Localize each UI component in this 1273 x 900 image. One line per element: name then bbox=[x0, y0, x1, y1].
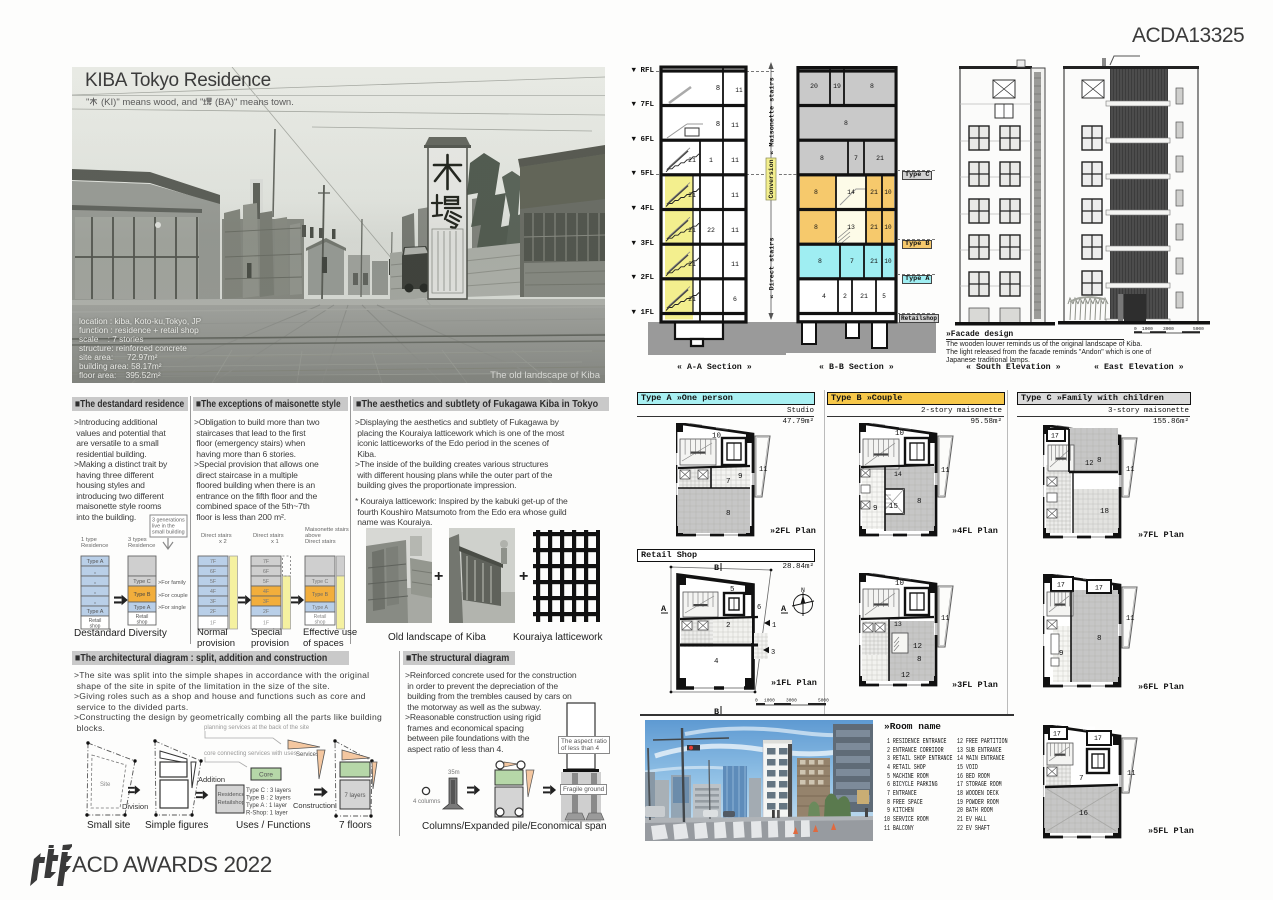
svg-text:Type A: Type A bbox=[87, 609, 104, 615]
svg-text:>For family: >For family bbox=[158, 580, 186, 586]
svg-text:20: 20 bbox=[810, 83, 818, 90]
svg-text:« Direct stairs: « Direct stairs bbox=[769, 237, 777, 298]
svg-text:Direct stairs: Direct stairs bbox=[253, 533, 284, 539]
svg-text:2: 2 bbox=[726, 622, 731, 630]
svg-text:7 layers: 7 layers bbox=[344, 793, 365, 799]
svg-text:11: 11 bbox=[1126, 466, 1134, 474]
svg-text:21: 21 bbox=[688, 261, 696, 268]
svg-text:16: 16 bbox=[1079, 810, 1089, 818]
svg-text:Type A: Type A bbox=[87, 559, 104, 565]
svg-text:18: 18 bbox=[1100, 508, 1109, 516]
svg-text:7: 7 bbox=[726, 478, 731, 486]
svg-text:„: „ bbox=[94, 569, 96, 575]
svg-text:4F: 4F bbox=[263, 589, 269, 595]
svg-text:21: 21 bbox=[870, 189, 878, 196]
svg-text:11: 11 bbox=[941, 615, 949, 623]
svg-text:14: 14 bbox=[847, 189, 855, 196]
svg-text:10: 10 bbox=[712, 433, 722, 441]
svg-text:5F: 5F bbox=[210, 579, 216, 585]
svg-text:21: 21 bbox=[870, 258, 878, 265]
svg-text:8: 8 bbox=[814, 224, 818, 231]
svg-text:Retailshop: Retailshop bbox=[218, 800, 245, 806]
svg-text:B: B bbox=[714, 563, 719, 573]
svg-text:11: 11 bbox=[731, 192, 739, 199]
svg-text:Residence: Residence bbox=[81, 543, 108, 549]
svg-text:1000: 1000 bbox=[764, 698, 775, 704]
svg-text:Type B: Type B bbox=[133, 592, 150, 598]
svg-text:Type B : 2 layers: Type B : 2 layers bbox=[246, 796, 291, 802]
svg-text:17: 17 bbox=[1094, 735, 1102, 742]
svg-text:6: 6 bbox=[757, 604, 761, 612]
svg-text:11: 11 bbox=[731, 227, 739, 234]
svg-text:small building: small building bbox=[152, 530, 185, 536]
svg-text:3F: 3F bbox=[263, 599, 269, 605]
svg-text:Type A: Type A bbox=[312, 605, 328, 611]
svg-text:11: 11 bbox=[1127, 770, 1135, 778]
svg-text:7: 7 bbox=[850, 258, 854, 265]
svg-text:11: 11 bbox=[759, 466, 767, 474]
svg-text:8: 8 bbox=[1097, 635, 1102, 643]
svg-text:6: 6 bbox=[733, 296, 737, 303]
svg-text:B: B bbox=[714, 707, 719, 717]
svg-text:7: 7 bbox=[1079, 775, 1084, 783]
svg-text:3: 3 bbox=[771, 649, 775, 657]
svg-text:Addition: Addition bbox=[198, 775, 225, 784]
svg-text:7: 7 bbox=[854, 155, 858, 162]
svg-text:3F: 3F bbox=[210, 599, 216, 605]
svg-text:10: 10 bbox=[884, 258, 892, 265]
svg-text:Type A : 1 layer: Type A : 1 layer bbox=[246, 803, 287, 809]
svg-text:„: „ bbox=[94, 589, 96, 595]
svg-text:12: 12 bbox=[901, 672, 910, 680]
svg-text:8: 8 bbox=[917, 656, 922, 664]
svg-text:4F: 4F bbox=[210, 589, 216, 595]
svg-text:8: 8 bbox=[818, 258, 822, 265]
svg-text:9: 9 bbox=[1059, 650, 1064, 658]
svg-text:x 2: x 2 bbox=[219, 539, 227, 545]
svg-text:2F: 2F bbox=[210, 609, 216, 615]
svg-text:„: „ bbox=[94, 579, 96, 585]
svg-text:Type C: Type C bbox=[133, 579, 150, 585]
svg-text:14: 14 bbox=[894, 471, 902, 478]
svg-text:„: „ bbox=[94, 599, 96, 605]
svg-text:x 1: x 1 bbox=[271, 539, 279, 545]
svg-text:Residence: Residence bbox=[128, 543, 155, 549]
svg-text:Direct stairs: Direct stairs bbox=[201, 533, 232, 539]
svg-text:22: 22 bbox=[707, 227, 715, 234]
svg-text:2F: 2F bbox=[263, 609, 269, 615]
svg-text:1: 1 bbox=[772, 622, 776, 630]
svg-text:4 columns: 4 columns bbox=[413, 799, 440, 805]
svg-text:11: 11 bbox=[731, 157, 739, 164]
svg-text:Site: Site bbox=[100, 782, 111, 788]
svg-text:Type C: Type C bbox=[312, 579, 329, 585]
svg-text:4: 4 bbox=[714, 658, 719, 666]
svg-text:1F: 1F bbox=[210, 621, 216, 627]
svg-text:12: 12 bbox=[1085, 460, 1093, 468]
svg-text:17: 17 bbox=[1051, 433, 1059, 440]
svg-text:10: 10 bbox=[895, 580, 905, 588]
svg-text:« Maisonette stairs: « Maisonette stairs bbox=[769, 77, 777, 155]
svg-text:21: 21 bbox=[688, 157, 696, 164]
svg-text:3000: 3000 bbox=[1163, 326, 1174, 332]
svg-text:8: 8 bbox=[820, 155, 824, 162]
svg-text:9: 9 bbox=[738, 473, 743, 481]
svg-text:7F: 7F bbox=[210, 559, 216, 565]
svg-text:8: 8 bbox=[716, 85, 720, 93]
svg-text:5: 5 bbox=[882, 293, 886, 300]
svg-text:Type A: Type A bbox=[134, 605, 151, 611]
svg-text:Conversion: Conversion bbox=[768, 159, 775, 198]
svg-text:planning services at the back: planning services at the back of the sit… bbox=[204, 725, 310, 731]
svg-text:11: 11 bbox=[941, 467, 949, 475]
svg-text:11: 11 bbox=[735, 87, 743, 94]
svg-text:13: 13 bbox=[847, 224, 855, 231]
svg-text:17: 17 bbox=[1057, 582, 1065, 589]
svg-text:8: 8 bbox=[716, 121, 720, 129]
svg-text:11: 11 bbox=[1126, 615, 1134, 623]
svg-text:6F: 6F bbox=[263, 569, 269, 575]
svg-text:shop: shop bbox=[137, 620, 148, 626]
svg-text:11: 11 bbox=[731, 122, 739, 129]
svg-text:7F: 7F bbox=[263, 559, 269, 565]
svg-text:15: 15 bbox=[889, 503, 899, 511]
svg-text:8: 8 bbox=[870, 83, 874, 90]
svg-text:8: 8 bbox=[917, 498, 922, 506]
svg-text:21: 21 bbox=[688, 227, 696, 234]
svg-text:21: 21 bbox=[860, 293, 868, 300]
svg-text:5F: 5F bbox=[263, 579, 269, 585]
svg-text:1F: 1F bbox=[263, 621, 269, 627]
svg-text:Core: Core bbox=[259, 772, 273, 779]
svg-text:12: 12 bbox=[913, 643, 922, 651]
svg-text:35m: 35m bbox=[448, 770, 460, 776]
svg-text:Direct stairs: Direct stairs bbox=[305, 539, 336, 545]
svg-text:4: 4 bbox=[822, 293, 826, 300]
svg-text:core connecting services with: core connecting services with uses bbox=[204, 751, 297, 757]
svg-text:R-Shop: 1 layer: R-Shop: 1 layer bbox=[246, 811, 288, 817]
svg-text:10: 10 bbox=[895, 430, 905, 438]
svg-text:21: 21 bbox=[688, 192, 696, 199]
svg-text:shop: shop bbox=[315, 620, 326, 626]
svg-text:3000: 3000 bbox=[786, 698, 797, 704]
svg-text:10: 10 bbox=[884, 224, 892, 231]
svg-text:17: 17 bbox=[1095, 585, 1103, 592]
svg-text:>For couple: >For couple bbox=[158, 593, 188, 599]
svg-text:Construction: Construction bbox=[293, 801, 335, 810]
svg-text:8: 8 bbox=[844, 120, 848, 127]
svg-text:17: 17 bbox=[1053, 731, 1061, 738]
svg-text:19: 19 bbox=[833, 83, 841, 90]
svg-text:2: 2 bbox=[843, 293, 847, 300]
svg-text:Type B: Type B bbox=[312, 592, 329, 598]
svg-text:0: 0 bbox=[755, 698, 758, 704]
svg-text:Services: Services bbox=[296, 752, 319, 758]
svg-text:5: 5 bbox=[730, 586, 735, 594]
svg-text:>For single: >For single bbox=[158, 605, 186, 611]
svg-text:5000: 5000 bbox=[1193, 326, 1204, 332]
svg-text:5000: 5000 bbox=[818, 698, 829, 704]
svg-text:8: 8 bbox=[814, 189, 818, 196]
svg-text:Residence: Residence bbox=[218, 792, 245, 798]
svg-text:8: 8 bbox=[1097, 457, 1102, 465]
svg-text:21: 21 bbox=[688, 296, 696, 303]
svg-text:11: 11 bbox=[731, 261, 739, 268]
svg-text:1: 1 bbox=[709, 157, 713, 164]
svg-text:10: 10 bbox=[884, 189, 892, 196]
svg-text:Division: Division bbox=[122, 802, 148, 811]
svg-text:9: 9 bbox=[873, 505, 878, 513]
svg-text:13: 13 bbox=[894, 621, 902, 628]
svg-text:6F: 6F bbox=[210, 569, 216, 575]
svg-text:21: 21 bbox=[876, 155, 884, 162]
svg-text:Type C : 3 layers: Type C : 3 layers bbox=[246, 788, 291, 794]
svg-text:21: 21 bbox=[870, 224, 878, 231]
svg-text:8: 8 bbox=[726, 510, 731, 518]
